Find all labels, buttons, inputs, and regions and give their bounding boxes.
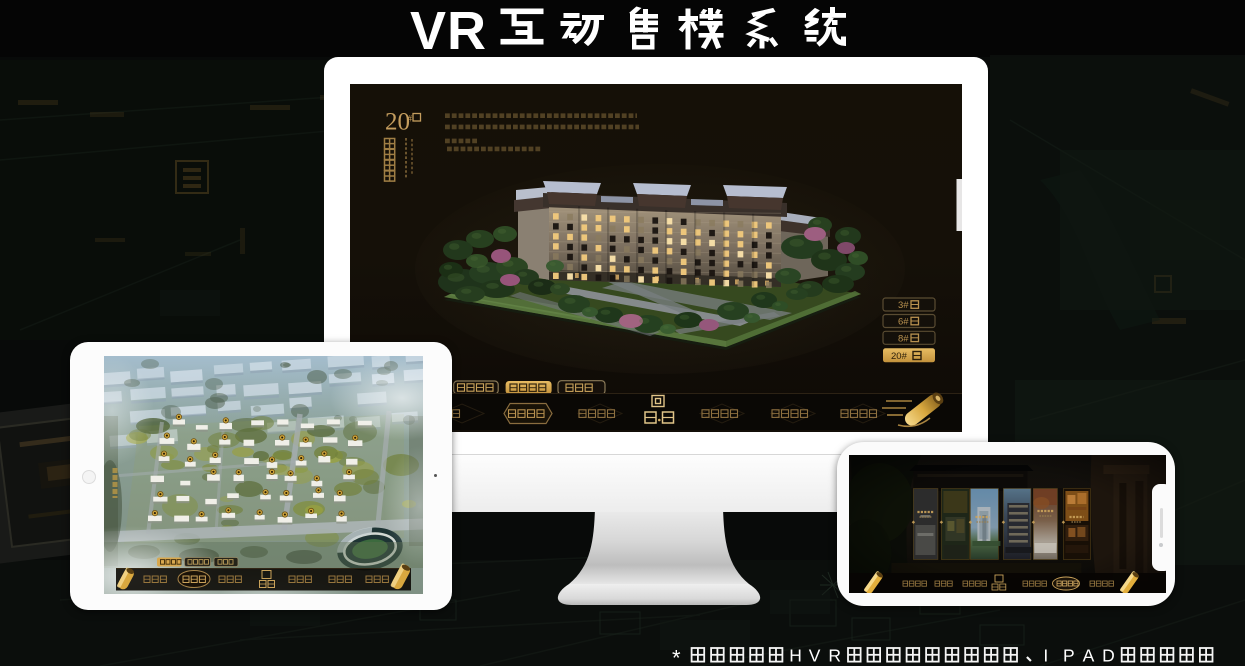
- svg-text:8#: 8#: [898, 333, 909, 344]
- svg-text:*: *: [672, 646, 681, 666]
- svg-text:20: 20: [385, 109, 410, 136]
- svg-text:H: H: [789, 646, 802, 666]
- svg-text:20#: 20#: [891, 351, 908, 362]
- svg-text:P: P: [1063, 646, 1075, 666]
- svg-text:6#: 6#: [898, 317, 909, 328]
- svg-text:A: A: [1083, 646, 1095, 666]
- svg-text:V: V: [809, 646, 821, 666]
- svg-text:R: R: [828, 646, 841, 666]
- svg-text:#: #: [408, 114, 413, 124]
- svg-text:D: D: [1102, 646, 1115, 666]
- svg-text:VR: VR: [410, 4, 487, 56]
- svg-text:3#: 3#: [898, 300, 909, 311]
- svg-text:I: I: [1043, 646, 1048, 666]
